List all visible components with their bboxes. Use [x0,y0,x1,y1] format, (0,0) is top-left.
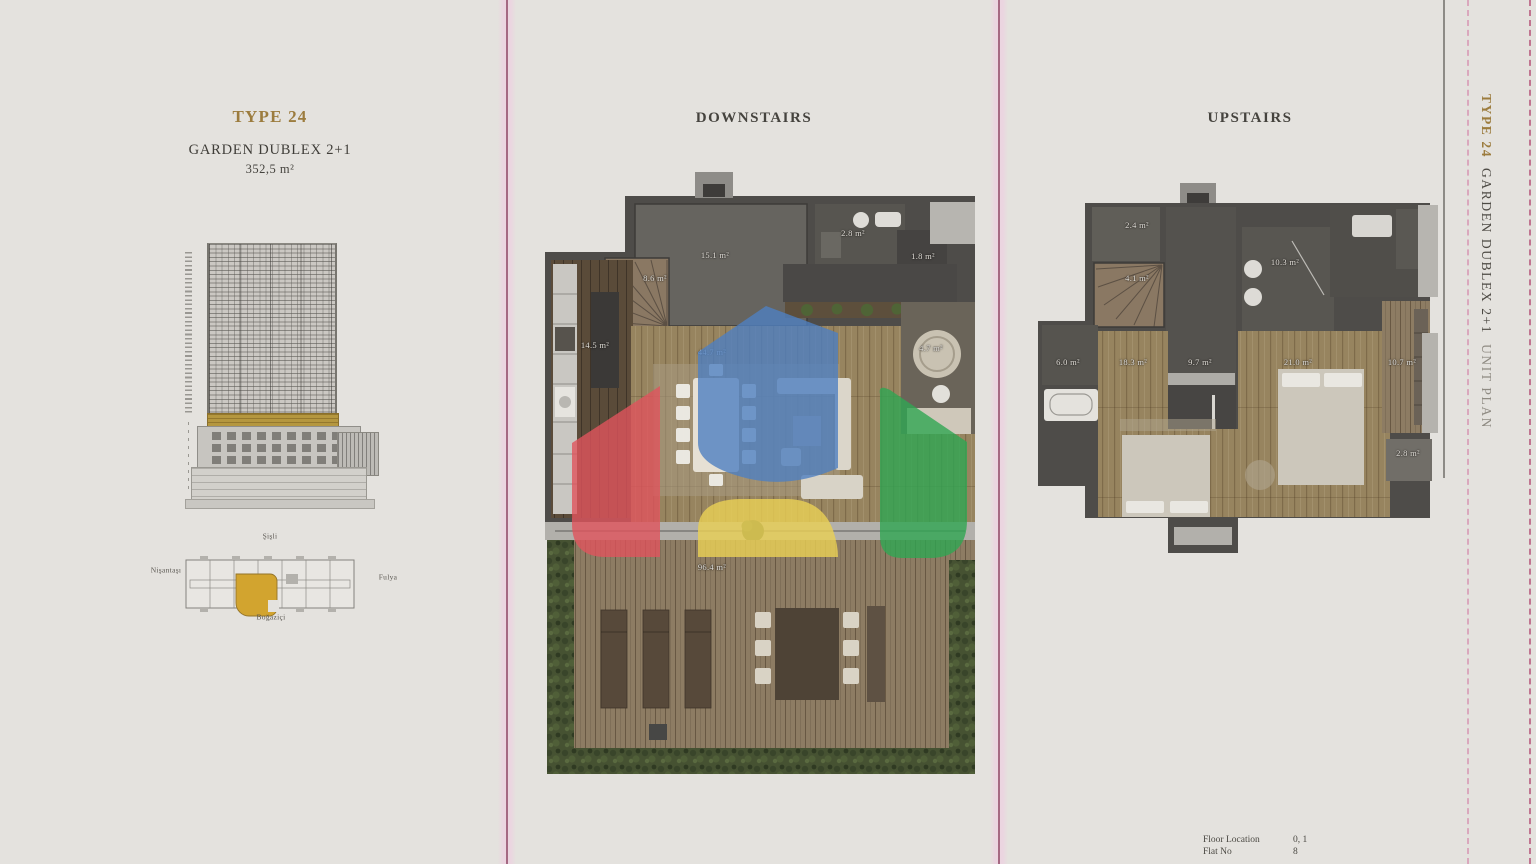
tower-structure-lines [209,244,335,414]
footer-value: 0, 1 [1293,834,1307,846]
room-area-label: 44.7 m² [698,347,726,357]
downstairs-room-labels: 15.1 m²2.8 m²1.8 m²8.6 m²14.5 m²44.7 m²4… [545,172,975,777]
footer-label: Floor Location [1203,834,1293,846]
unit-location-highlight [207,413,339,427]
unit-type-title: TYPE 24 [95,107,445,127]
room-area-label: 2.8 m² [1396,448,1420,458]
unit-name-title: GARDEN DUBLEX 2+1 [95,141,445,159]
brochure-page: { "page": {"bg": "#e4e2de"}, "left_panel… [0,0,1536,864]
room-area-label: 2.8 m² [841,228,865,238]
unit-total-area: 352,5 m² [95,160,445,178]
building-base [191,467,367,501]
tower-facade [207,243,337,414]
room-area-label: 18.3 m² [1119,357,1147,367]
room-area-label: 1.8 m² [911,251,935,261]
room-area-label: 10.7 m² [1388,357,1416,367]
room-area-label: 8.6 m² [643,273,667,283]
room-area-label: 15.1 m² [701,250,729,260]
margin-dashed-line [1467,0,1469,864]
ground-slab [185,499,375,509]
column-divider-left [498,0,516,864]
downstairs-title: DOWNSTAIRS [509,110,999,127]
room-area-label: 6.0 m² [1056,357,1080,367]
side-strip-plan: UNIT PLAN [1479,344,1494,429]
podium-window-row [212,432,350,440]
side-strip-name: GARDEN DUBLEX 2+1 [1479,168,1494,334]
floor-ticks-tail [188,422,189,494]
footer-value: 8 [1293,846,1298,858]
unit-area-text: 352,5 m² [246,162,295,176]
room-area-label: 14.5 m² [581,340,609,350]
site-label-left: Nişantaşı [151,566,182,575]
building-elevation [185,240,385,508]
footer-info: Floor Location 0, 1 Flat No 8 [1203,834,1307,858]
room-area-label: 2.4 m² [1125,220,1149,230]
margin-gray-line [1443,0,1445,478]
room-area-label: 21.0 m² [1284,357,1312,367]
column-divider-right [990,0,1008,864]
podium-window-row [212,456,350,464]
room-area-label: 96.4 m² [698,562,726,572]
floor-number-ticks [185,252,192,414]
footer-row-floor-location: Floor Location 0, 1 [1203,834,1307,846]
footer-row-flat-no: Flat No 8 [1203,846,1307,858]
room-area-label: 10.3 m² [1271,257,1299,267]
downstairs-plan: 15.1 m²2.8 m²1.8 m²8.6 m²14.5 m²44.7 m²4… [545,172,975,777]
upstairs-title: UPSTAIRS [1030,110,1470,127]
type-title-text: TYPE 24 [233,107,308,126]
site-label-top: Şişli [263,532,278,541]
side-strip-type: TYPE 24 [1479,94,1494,158]
footer-label: Flat No [1203,846,1293,858]
site-key-plan: Şişli Nişantaşı Fulya Boğaziçi [140,528,410,638]
site-label-bottom: Boğaziçi [256,613,285,622]
podium-window-row [212,444,350,452]
upstairs-plan: 2.4 m²4.1 m²10.3 m²9.7 m²6.0 m²18.3 m²21… [1030,183,1440,573]
upstairs-room-labels: 2.4 m²4.1 m²10.3 m²9.7 m²6.0 m²18.3 m²21… [1030,183,1440,573]
site-label-right: Fulya [379,573,398,582]
room-area-label: 4.1 m² [1125,273,1149,283]
side-strip-title: TYPE 24 GARDEN DUBLEX 2+1 UNIT PLAN [1478,94,1494,429]
edge-dashed-line [1529,0,1531,864]
room-area-label: 9.7 m² [1188,357,1212,367]
room-area-label: 4.7 m² [919,343,943,353]
unit-name-text: GARDEN DUBLEX 2+1 [189,142,352,158]
